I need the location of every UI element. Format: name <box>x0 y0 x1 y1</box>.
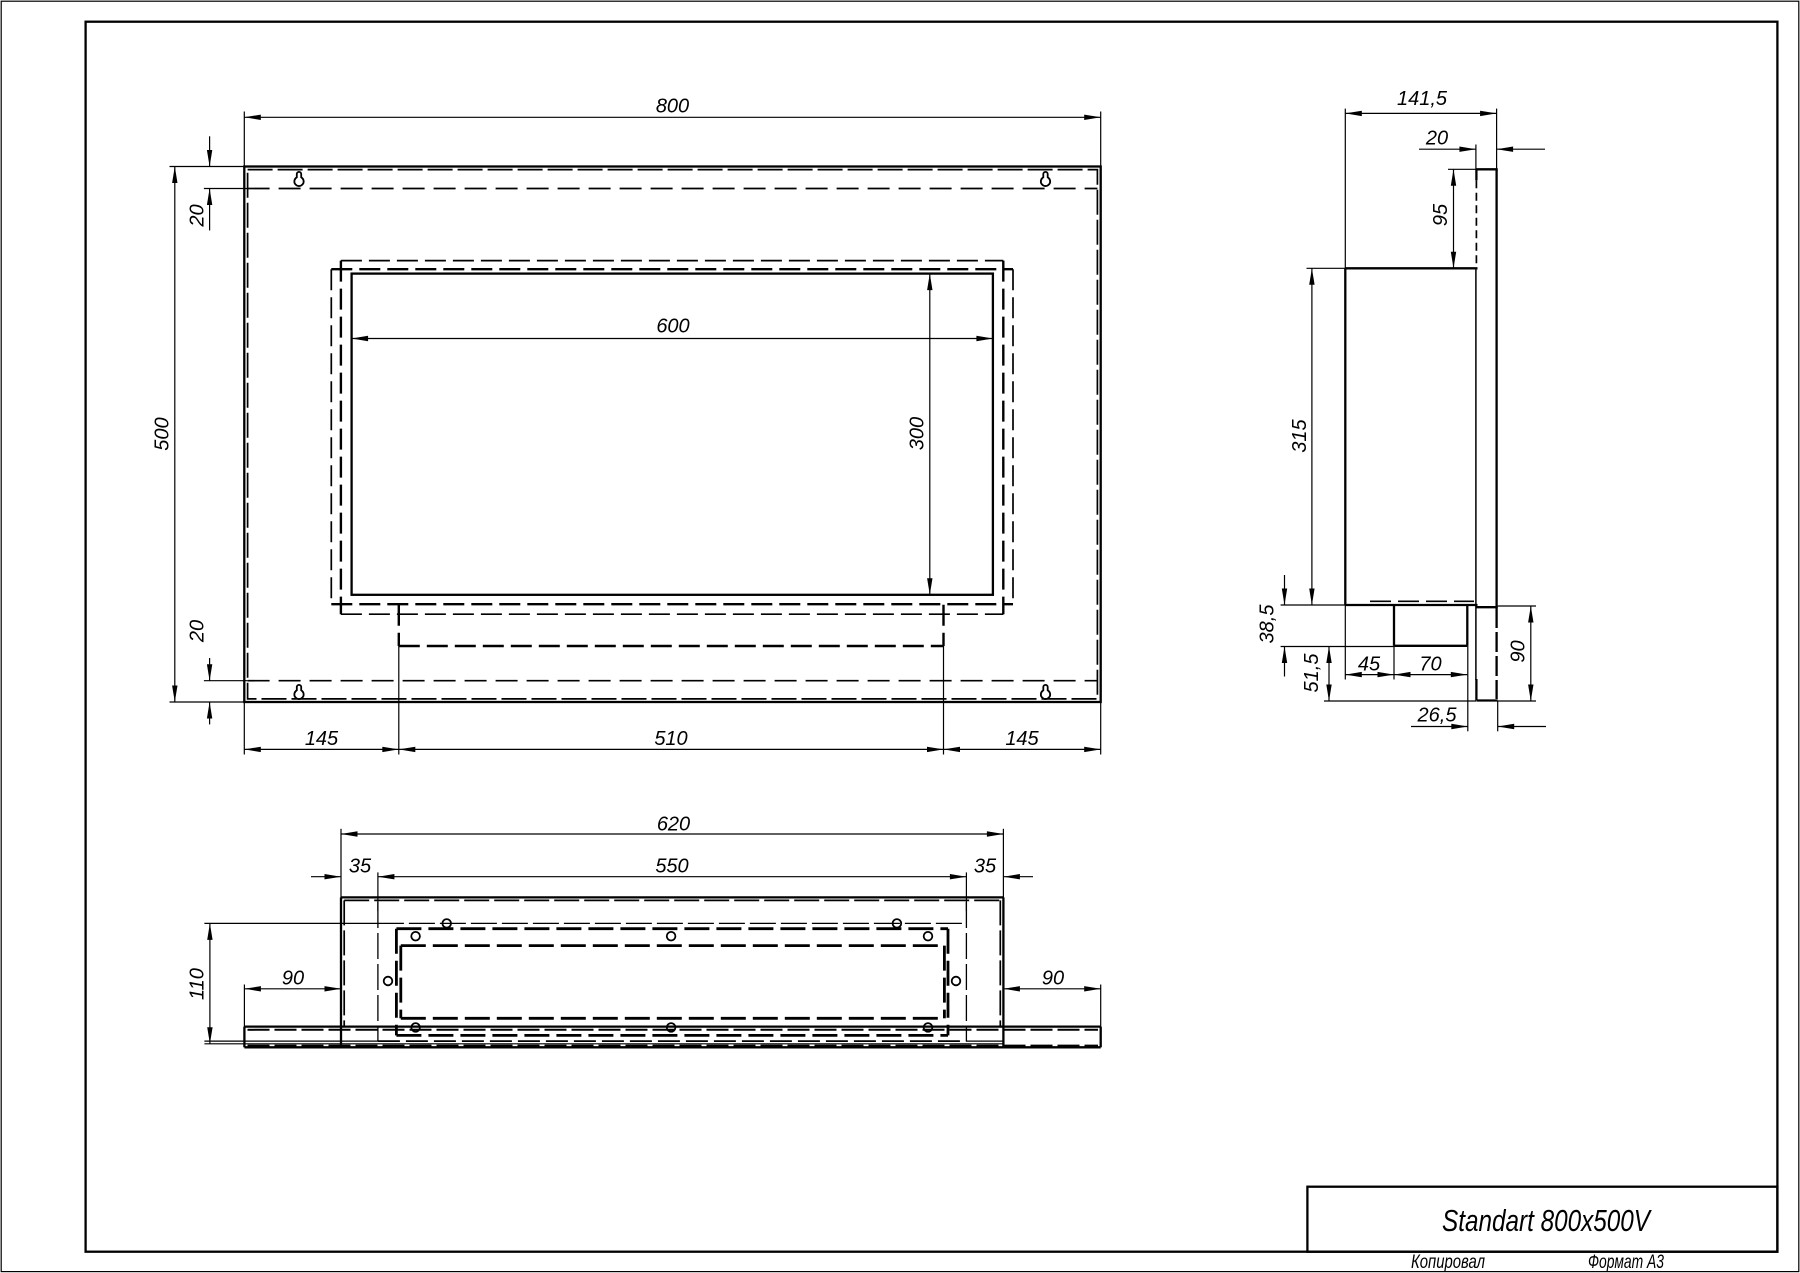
svg-text:20: 20 <box>186 620 208 643</box>
svg-text:Копировал: Копировал <box>1411 1252 1485 1273</box>
svg-text:Standart 800x500V: Standart 800x500V <box>1442 1203 1653 1238</box>
svg-text:600: 600 <box>656 315 689 337</box>
svg-text:51,5: 51,5 <box>1301 653 1323 693</box>
svg-text:510: 510 <box>654 728 687 750</box>
svg-text:35: 35 <box>349 856 372 878</box>
svg-text:300: 300 <box>907 417 929 450</box>
svg-text:550: 550 <box>655 856 688 878</box>
svg-text:90: 90 <box>282 967 304 989</box>
svg-text:26,5: 26,5 <box>1417 705 1458 727</box>
svg-text:70: 70 <box>1419 654 1441 676</box>
svg-text:145: 145 <box>1005 728 1039 750</box>
svg-text:Формат А3: Формат А3 <box>1588 1252 1664 1273</box>
svg-text:35: 35 <box>974 856 997 878</box>
svg-text:110: 110 <box>187 968 209 1000</box>
svg-text:20: 20 <box>1425 128 1448 150</box>
svg-text:45: 45 <box>1358 654 1381 676</box>
svg-text:20: 20 <box>186 204 208 227</box>
svg-text:500: 500 <box>152 417 174 450</box>
svg-text:38,5: 38,5 <box>1257 604 1279 644</box>
svg-text:800: 800 <box>656 96 689 118</box>
svg-text:90: 90 <box>1042 967 1064 989</box>
svg-text:620: 620 <box>657 814 690 836</box>
svg-text:141,5: 141,5 <box>1397 88 1448 110</box>
svg-text:315: 315 <box>1289 418 1311 452</box>
svg-text:95: 95 <box>1430 203 1452 226</box>
svg-text:90: 90 <box>1508 640 1530 662</box>
svg-text:145: 145 <box>305 728 339 750</box>
